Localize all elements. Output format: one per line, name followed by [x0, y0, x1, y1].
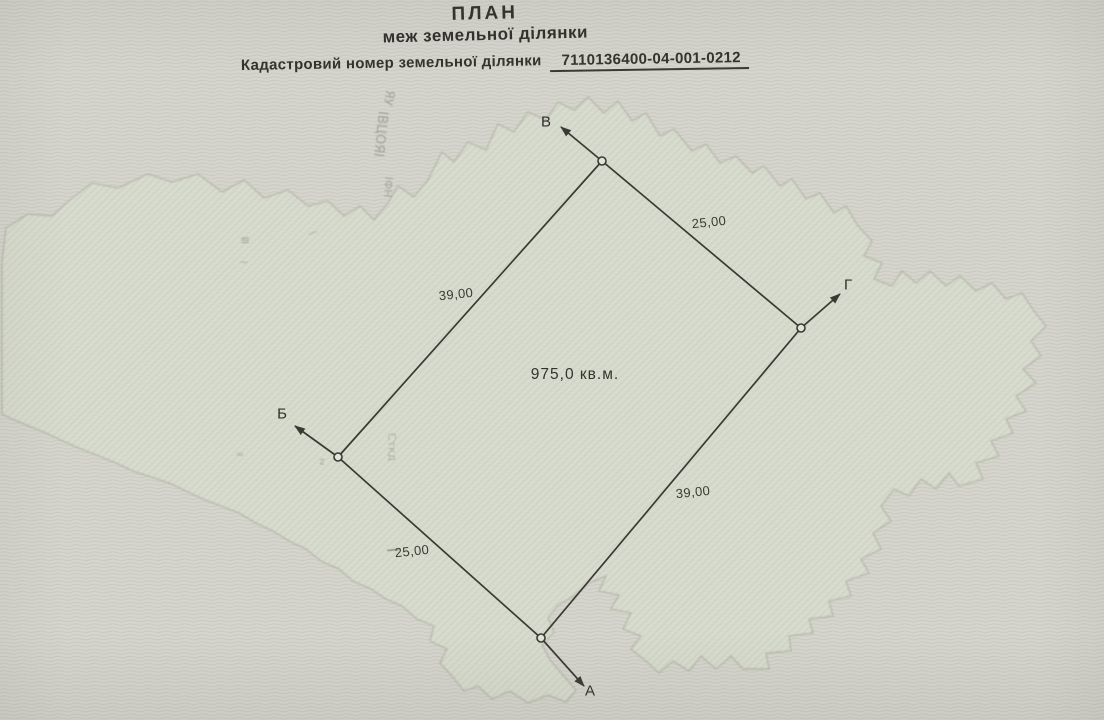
bleedthrough-mark: ≈ — [236, 450, 244, 461]
cadastral-number-value: 7110136400-04-001-0212 — [549, 49, 749, 72]
plan-drawing — [0, 0, 1104, 720]
point-label-v: В — [541, 114, 551, 131]
bleedthrough-mark: ~ — [239, 256, 248, 269]
vertex-point — [537, 634, 545, 642]
point-label-g: Г — [844, 277, 852, 294]
bleedthrough-mark: ≡ — [240, 233, 250, 247]
scanned-plan-page: ПЛАН меж земельної ділянки Кадастровий н… — [0, 0, 1104, 720]
bleedthrough-mark: ЯУ — [381, 89, 398, 107]
vertex-point — [334, 453, 342, 461]
point-label-be: Б — [277, 406, 287, 423]
vertex-point — [797, 324, 805, 332]
bleedthrough-mark: z — [319, 457, 324, 468]
vertex-point — [598, 157, 606, 165]
area-label: 975,0 кв.м. — [531, 366, 619, 384]
bleedthrough-mark: ІФН — [381, 176, 395, 198]
point-label-a: А — [585, 683, 595, 700]
cadastral-number-label: Кадастровий номер земельної ділянки — [241, 52, 542, 74]
bleedthrough-mark: Сткд — [385, 433, 399, 462]
